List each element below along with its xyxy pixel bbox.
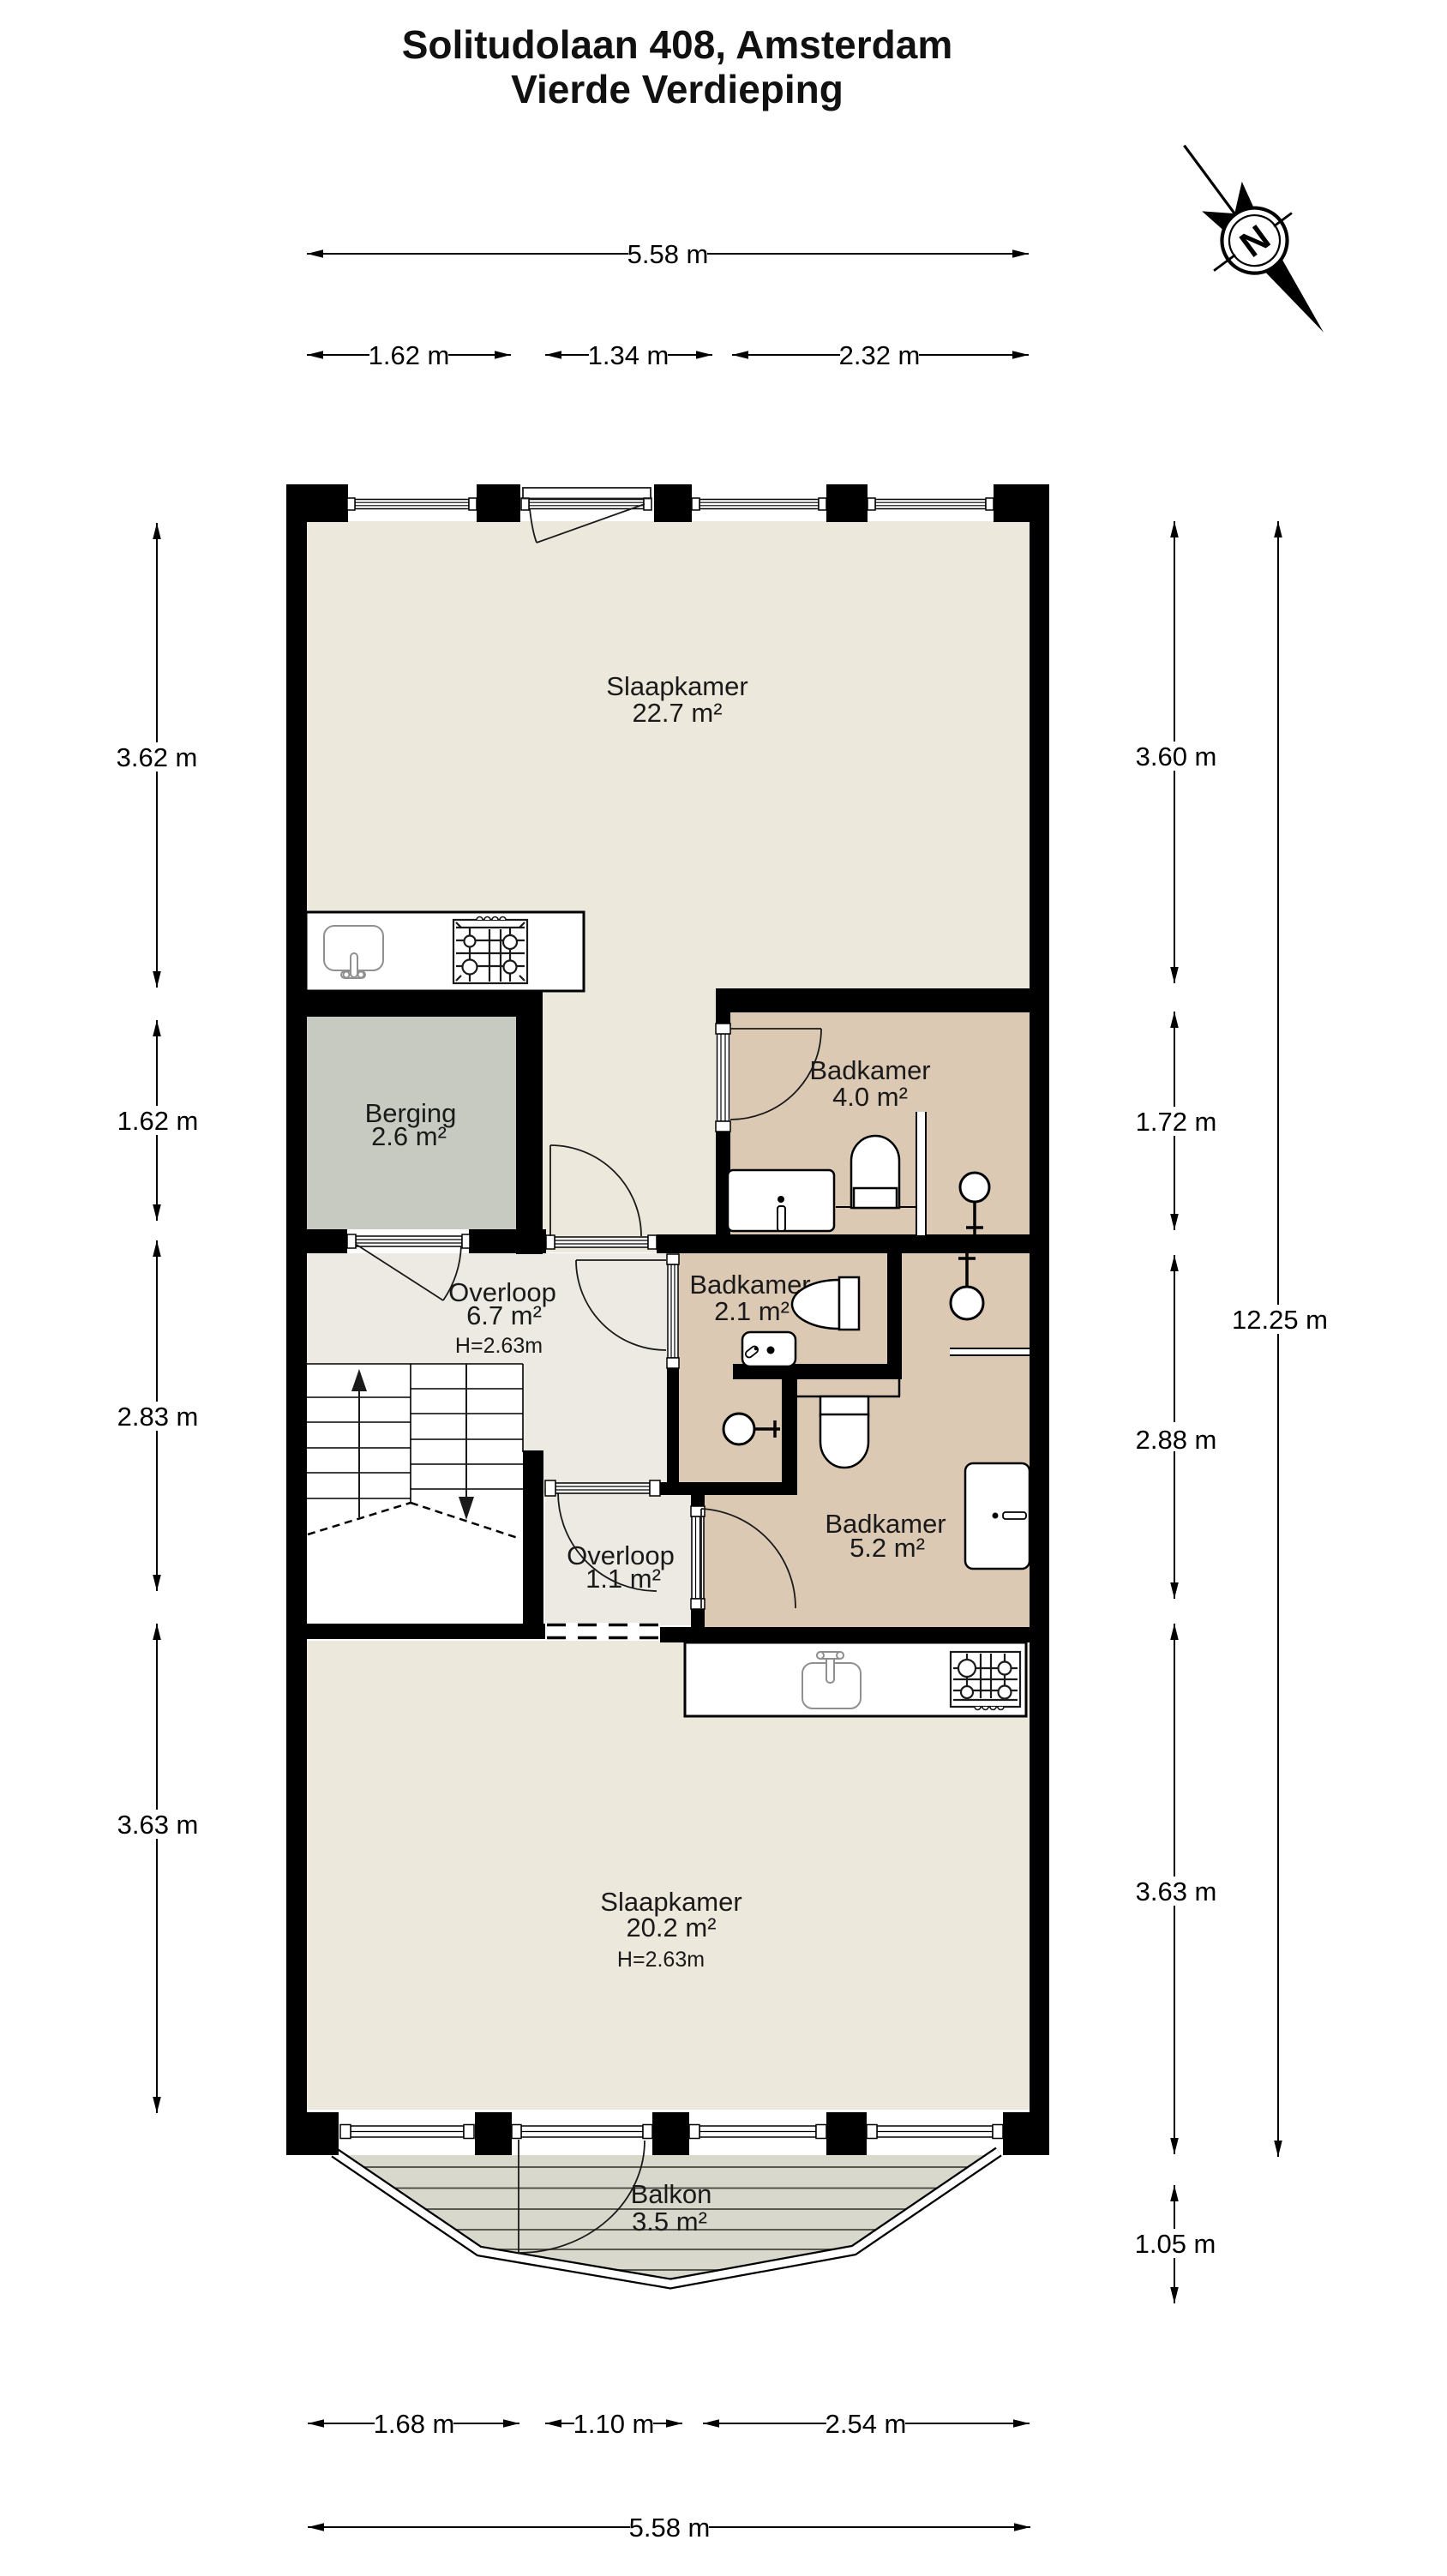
svg-text:1.10 m: 1.10 m <box>573 2409 655 2439</box>
svg-text:2.1 m²: 2.1 m² <box>714 1296 790 1326</box>
svg-text:Solitudolaan 408, Amsterdam: Solitudolaan 408, Amsterdam <box>402 22 952 67</box>
svg-text:1.72 m: 1.72 m <box>1136 1107 1217 1137</box>
svg-text:Badkamer: Badkamer <box>809 1055 930 1085</box>
svg-text:3.5 m²: 3.5 m² <box>632 2207 707 2237</box>
svg-text:Balkon: Balkon <box>631 2179 712 2209</box>
svg-text:3.63 m: 3.63 m <box>117 1810 199 1840</box>
svg-text:1.68 m: 1.68 m <box>374 2409 455 2439</box>
svg-text:Badkamer: Badkamer <box>689 1270 810 1300</box>
svg-text:Vierde Verdieping: Vierde Verdieping <box>511 67 844 111</box>
svg-text:1.05 m: 1.05 m <box>1135 2229 1216 2259</box>
svg-text:22.7 m²: 22.7 m² <box>632 698 722 728</box>
svg-text:5.2 m²: 5.2 m² <box>850 1533 925 1563</box>
svg-text:1.62 m: 1.62 m <box>369 340 450 370</box>
svg-text:H=2.63m: H=2.63m <box>617 1948 705 1972</box>
svg-text:2.88 m: 2.88 m <box>1136 1425 1217 1455</box>
svg-text:1.1 m²: 1.1 m² <box>585 1564 661 1594</box>
svg-text:Slaapkamer: Slaapkamer <box>606 671 748 701</box>
svg-text:2.54 m: 2.54 m <box>826 2409 907 2439</box>
svg-text:4.0 m²: 4.0 m² <box>832 1082 908 1112</box>
svg-text:5.58 m: 5.58 m <box>629 2513 711 2543</box>
svg-text:3.62 m: 3.62 m <box>117 742 198 772</box>
svg-text:2.32 m: 2.32 m <box>839 340 921 370</box>
svg-text:3.60 m: 3.60 m <box>1136 742 1217 772</box>
svg-text:1.34 m: 1.34 m <box>588 340 669 370</box>
svg-text:6.7 m²: 6.7 m² <box>466 1300 542 1330</box>
svg-text:3.63 m: 3.63 m <box>1136 1876 1217 1906</box>
svg-text:1.62 m: 1.62 m <box>117 1106 199 1136</box>
svg-text:2.83 m: 2.83 m <box>117 1402 199 1432</box>
svg-text:H=2.63m: H=2.63m <box>455 1334 543 1358</box>
svg-text:2.6 m²: 2.6 m² <box>371 1121 447 1151</box>
svg-text:20.2 m²: 20.2 m² <box>626 1912 716 1943</box>
svg-text:5.58 m: 5.58 m <box>627 239 709 269</box>
svg-text:12.25 m: 12.25 m <box>1232 1305 1328 1335</box>
